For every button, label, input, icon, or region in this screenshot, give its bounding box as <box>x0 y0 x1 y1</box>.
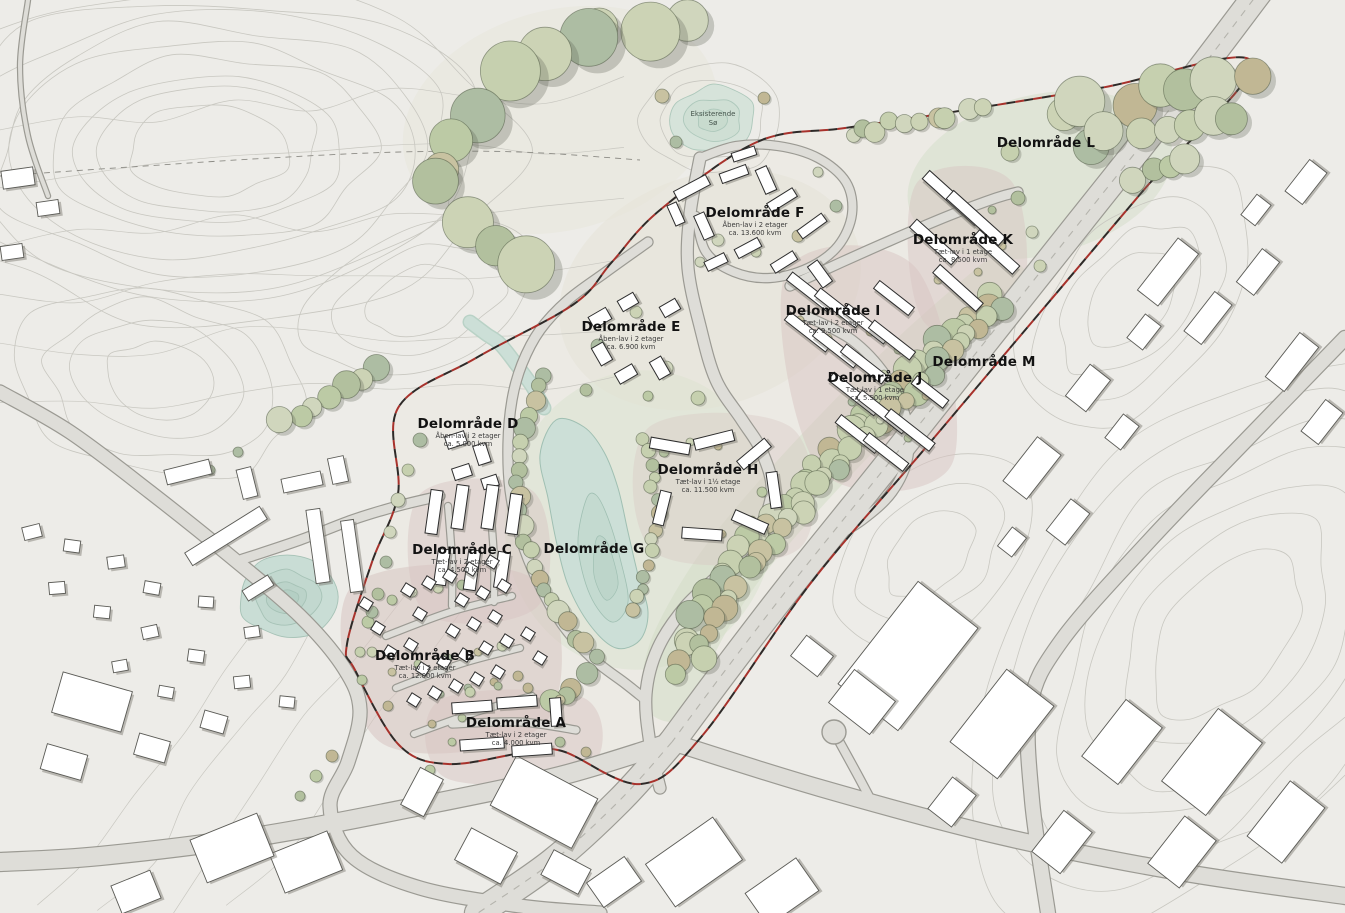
tree <box>402 464 414 476</box>
tree <box>621 2 680 61</box>
existing-building <box>49 581 69 597</box>
area-label-B: Delområde B <box>375 647 475 664</box>
area-sublabel-I: Tæt-lav i 2 etager <box>801 319 863 327</box>
existing-building <box>133 733 173 766</box>
area-arealabel-K: ca. 8.500 kvm <box>939 256 988 264</box>
tree <box>626 603 640 617</box>
site-plan-map: Delområde ATæt-lav i 2 etagerca. 4.000 k… <box>0 0 1345 913</box>
building-footprint <box>190 813 274 883</box>
tree <box>355 647 365 657</box>
tree <box>295 791 305 801</box>
existing-building <box>198 596 217 611</box>
existing-building <box>1162 706 1266 817</box>
tree <box>1119 167 1145 193</box>
tree <box>580 384 592 396</box>
building-footprint <box>1247 781 1325 863</box>
cul-de-sac <box>822 720 846 744</box>
tree <box>1011 191 1025 205</box>
building-footprint <box>143 581 161 596</box>
tree <box>573 632 594 653</box>
tree <box>428 720 436 728</box>
existing-building <box>112 659 132 675</box>
area-label-D: Delområde D <box>417 415 518 432</box>
tree <box>974 268 982 276</box>
area-sublabel-C: Tæt-lav i 2 etager <box>430 558 492 566</box>
existing-building <box>157 685 177 701</box>
area-sublabel-J: Tæt-lav i 1 etage <box>845 386 904 394</box>
existing-building <box>281 470 326 495</box>
existing-building <box>143 581 164 599</box>
tree <box>974 99 991 116</box>
building-footprint <box>745 858 819 913</box>
tree <box>830 200 842 212</box>
existing-building <box>1137 236 1202 308</box>
existing-building <box>233 675 253 691</box>
tree <box>383 701 393 711</box>
existing-building <box>63 539 83 556</box>
tree <box>513 434 529 450</box>
contour <box>0 21 428 277</box>
existing-building <box>1236 247 1283 297</box>
building-footprint <box>63 539 81 553</box>
contour <box>9 41 416 260</box>
existing-building <box>199 710 230 737</box>
tree <box>676 600 704 628</box>
tree <box>581 747 591 757</box>
area-arealabel-J: ca. 5.500 kvm <box>851 394 900 402</box>
building-footprint <box>1065 364 1110 412</box>
tree <box>645 543 659 557</box>
tree <box>266 407 292 433</box>
tree <box>512 449 527 464</box>
contour <box>1156 549 1303 720</box>
contour <box>0 9 449 292</box>
area-label-E: Delområde E <box>581 318 680 335</box>
existing-building <box>998 525 1031 559</box>
area-label-H: Delområde H <box>657 461 758 478</box>
tree <box>357 675 367 685</box>
tree <box>691 646 717 672</box>
existing-building <box>0 243 27 263</box>
tree <box>691 391 705 405</box>
existing-building <box>1082 697 1166 786</box>
tree <box>448 738 456 746</box>
area-arealabel-C: ca. 4.500 kvm <box>438 566 487 574</box>
area-arealabel-F: ca. 13.600 kvm <box>729 229 782 237</box>
existing-building <box>646 816 747 909</box>
existing-building <box>1127 312 1165 352</box>
tree <box>655 89 669 103</box>
area-sublabel-H: Tæt-lav i 1½ etage <box>675 478 741 486</box>
tree <box>1026 226 1038 238</box>
contour <box>887 511 976 598</box>
tree <box>387 595 397 605</box>
contour <box>14 288 306 479</box>
area-label-J: Delområde J <box>828 369 923 386</box>
existing-building <box>107 555 128 572</box>
building-footprint <box>158 685 175 698</box>
tree <box>523 683 533 693</box>
area-sublabel-F: Åben-lav i 2 etager <box>723 220 788 229</box>
tree <box>1235 58 1271 94</box>
contour <box>130 105 290 197</box>
area-label-I: Delområde I <box>786 302 881 319</box>
water-label-line1: Eksisterende <box>691 110 736 118</box>
existing-building <box>1285 157 1331 206</box>
building-footprint <box>0 244 24 261</box>
building-footprint <box>1 167 35 189</box>
existing-building <box>36 199 63 219</box>
building-footprint <box>236 467 258 500</box>
tree <box>880 112 898 130</box>
contour <box>53 54 381 236</box>
site-plan: Delområde ATæt-lav i 2 etagerca. 4.000 k… <box>0 0 1345 913</box>
building-footprint <box>1082 699 1163 784</box>
water-label-line2: Sø <box>709 119 718 127</box>
area-arealabel-D: ca. 5.000 kvm <box>444 440 493 448</box>
tree <box>555 737 565 747</box>
existing-building <box>587 855 646 910</box>
tree <box>1034 260 1046 272</box>
building-footprint <box>93 605 110 619</box>
area-label-L: Delområde L <box>997 134 1096 151</box>
area-sublabel-B: Tæt-lav i 2 etager <box>393 664 455 672</box>
tree <box>911 113 928 130</box>
building-footprint <box>497 695 538 709</box>
tree <box>513 671 523 681</box>
tree <box>558 612 577 631</box>
tree <box>670 136 682 148</box>
existing-building <box>327 455 351 487</box>
existing-building <box>1301 397 1345 446</box>
existing-building <box>341 519 367 595</box>
existing-building <box>187 649 207 666</box>
tree <box>494 682 502 690</box>
building-footprint <box>452 700 493 714</box>
tree <box>384 526 396 538</box>
building-footprint <box>279 696 295 709</box>
contour <box>69 320 244 438</box>
tree <box>630 589 644 603</box>
existing-building <box>745 856 822 913</box>
building-footprint <box>49 581 66 594</box>
building-footprint <box>107 555 126 569</box>
area-sublabel-D: Åben-lav i 2 etager <box>436 431 501 440</box>
tree <box>644 480 657 493</box>
contour <box>72 76 339 223</box>
tree <box>310 770 322 782</box>
building-footprint <box>40 744 88 781</box>
tree <box>523 542 539 558</box>
tree <box>1170 144 1200 174</box>
existing-building <box>791 633 837 678</box>
area-label-A: Delområde A <box>466 714 567 731</box>
tree <box>465 687 475 697</box>
building-footprint <box>646 817 743 907</box>
tree <box>498 236 555 293</box>
building-footprint <box>134 733 171 763</box>
building-footprint <box>36 200 60 217</box>
tree <box>372 588 384 600</box>
existing-building <box>279 696 298 711</box>
area-arealabel-A: ca. 4.000 kvm <box>492 739 541 747</box>
existing-building <box>1184 289 1236 346</box>
building-footprint <box>455 828 518 884</box>
area-label-F: Delområde F <box>705 204 804 221</box>
existing-building <box>236 466 261 502</box>
tree <box>739 556 761 578</box>
building-footprint <box>52 672 133 732</box>
building-footprint <box>112 659 129 672</box>
tree <box>758 92 770 104</box>
tree <box>531 378 546 393</box>
building-footprint <box>587 857 642 908</box>
existing-building <box>1003 435 1065 501</box>
tree <box>391 493 405 507</box>
tree <box>988 206 996 214</box>
existing-building <box>40 744 91 784</box>
area-sublabel-E: Åben-lav i 2 etager <box>599 334 664 343</box>
area-label-C: Delområde C <box>412 541 512 558</box>
building-footprint <box>187 649 205 663</box>
existing-building <box>1 166 38 191</box>
tree <box>636 570 649 583</box>
contour <box>365 264 474 336</box>
existing-building <box>1247 779 1328 865</box>
tree <box>326 750 338 762</box>
building-footprint <box>682 527 723 541</box>
existing-building <box>190 812 277 885</box>
tree <box>757 487 767 497</box>
existing-building <box>111 869 165 913</box>
area-arealabel-H: ca. 11.500 kvm <box>682 486 735 494</box>
tree <box>590 649 605 664</box>
tree <box>805 471 830 496</box>
existing-building <box>164 459 215 488</box>
building-footprint <box>1162 709 1263 816</box>
tree <box>934 108 955 129</box>
tree <box>576 663 598 685</box>
existing-building <box>22 523 46 543</box>
existing-building <box>1241 192 1275 227</box>
tree <box>413 158 459 204</box>
area-arealabel-I: ca. 9.500 kvm <box>809 327 858 335</box>
area-arealabel-B: ca. 12.000 kvm <box>399 672 452 680</box>
tree <box>643 560 654 571</box>
building-footprint <box>791 635 834 676</box>
existing-building <box>141 624 162 642</box>
building-footprint <box>233 675 250 689</box>
tree <box>813 167 823 177</box>
area-sublabel-K: Tæt-lav i 1 etage <box>933 248 992 256</box>
building-footprint <box>244 626 260 639</box>
area-label-M: Delområde M <box>932 353 1035 370</box>
tree <box>233 447 243 457</box>
existing-building <box>51 672 135 735</box>
building-footprint <box>198 596 214 608</box>
existing-building <box>93 605 113 621</box>
tree <box>380 556 392 568</box>
area-label-G: Delområde G <box>544 540 645 557</box>
existing-building <box>1105 412 1143 452</box>
area-arealabel-E: ca. 6.900 kvm <box>607 343 656 351</box>
area-label-K: Delområde K <box>913 231 1014 248</box>
tree <box>1215 103 1247 135</box>
tree <box>643 391 653 401</box>
tree <box>413 433 427 447</box>
contour <box>96 86 317 212</box>
tree <box>1126 118 1157 149</box>
tree <box>665 664 685 684</box>
area-sublabel-A: Tæt-lav i 2 etager <box>484 731 546 739</box>
